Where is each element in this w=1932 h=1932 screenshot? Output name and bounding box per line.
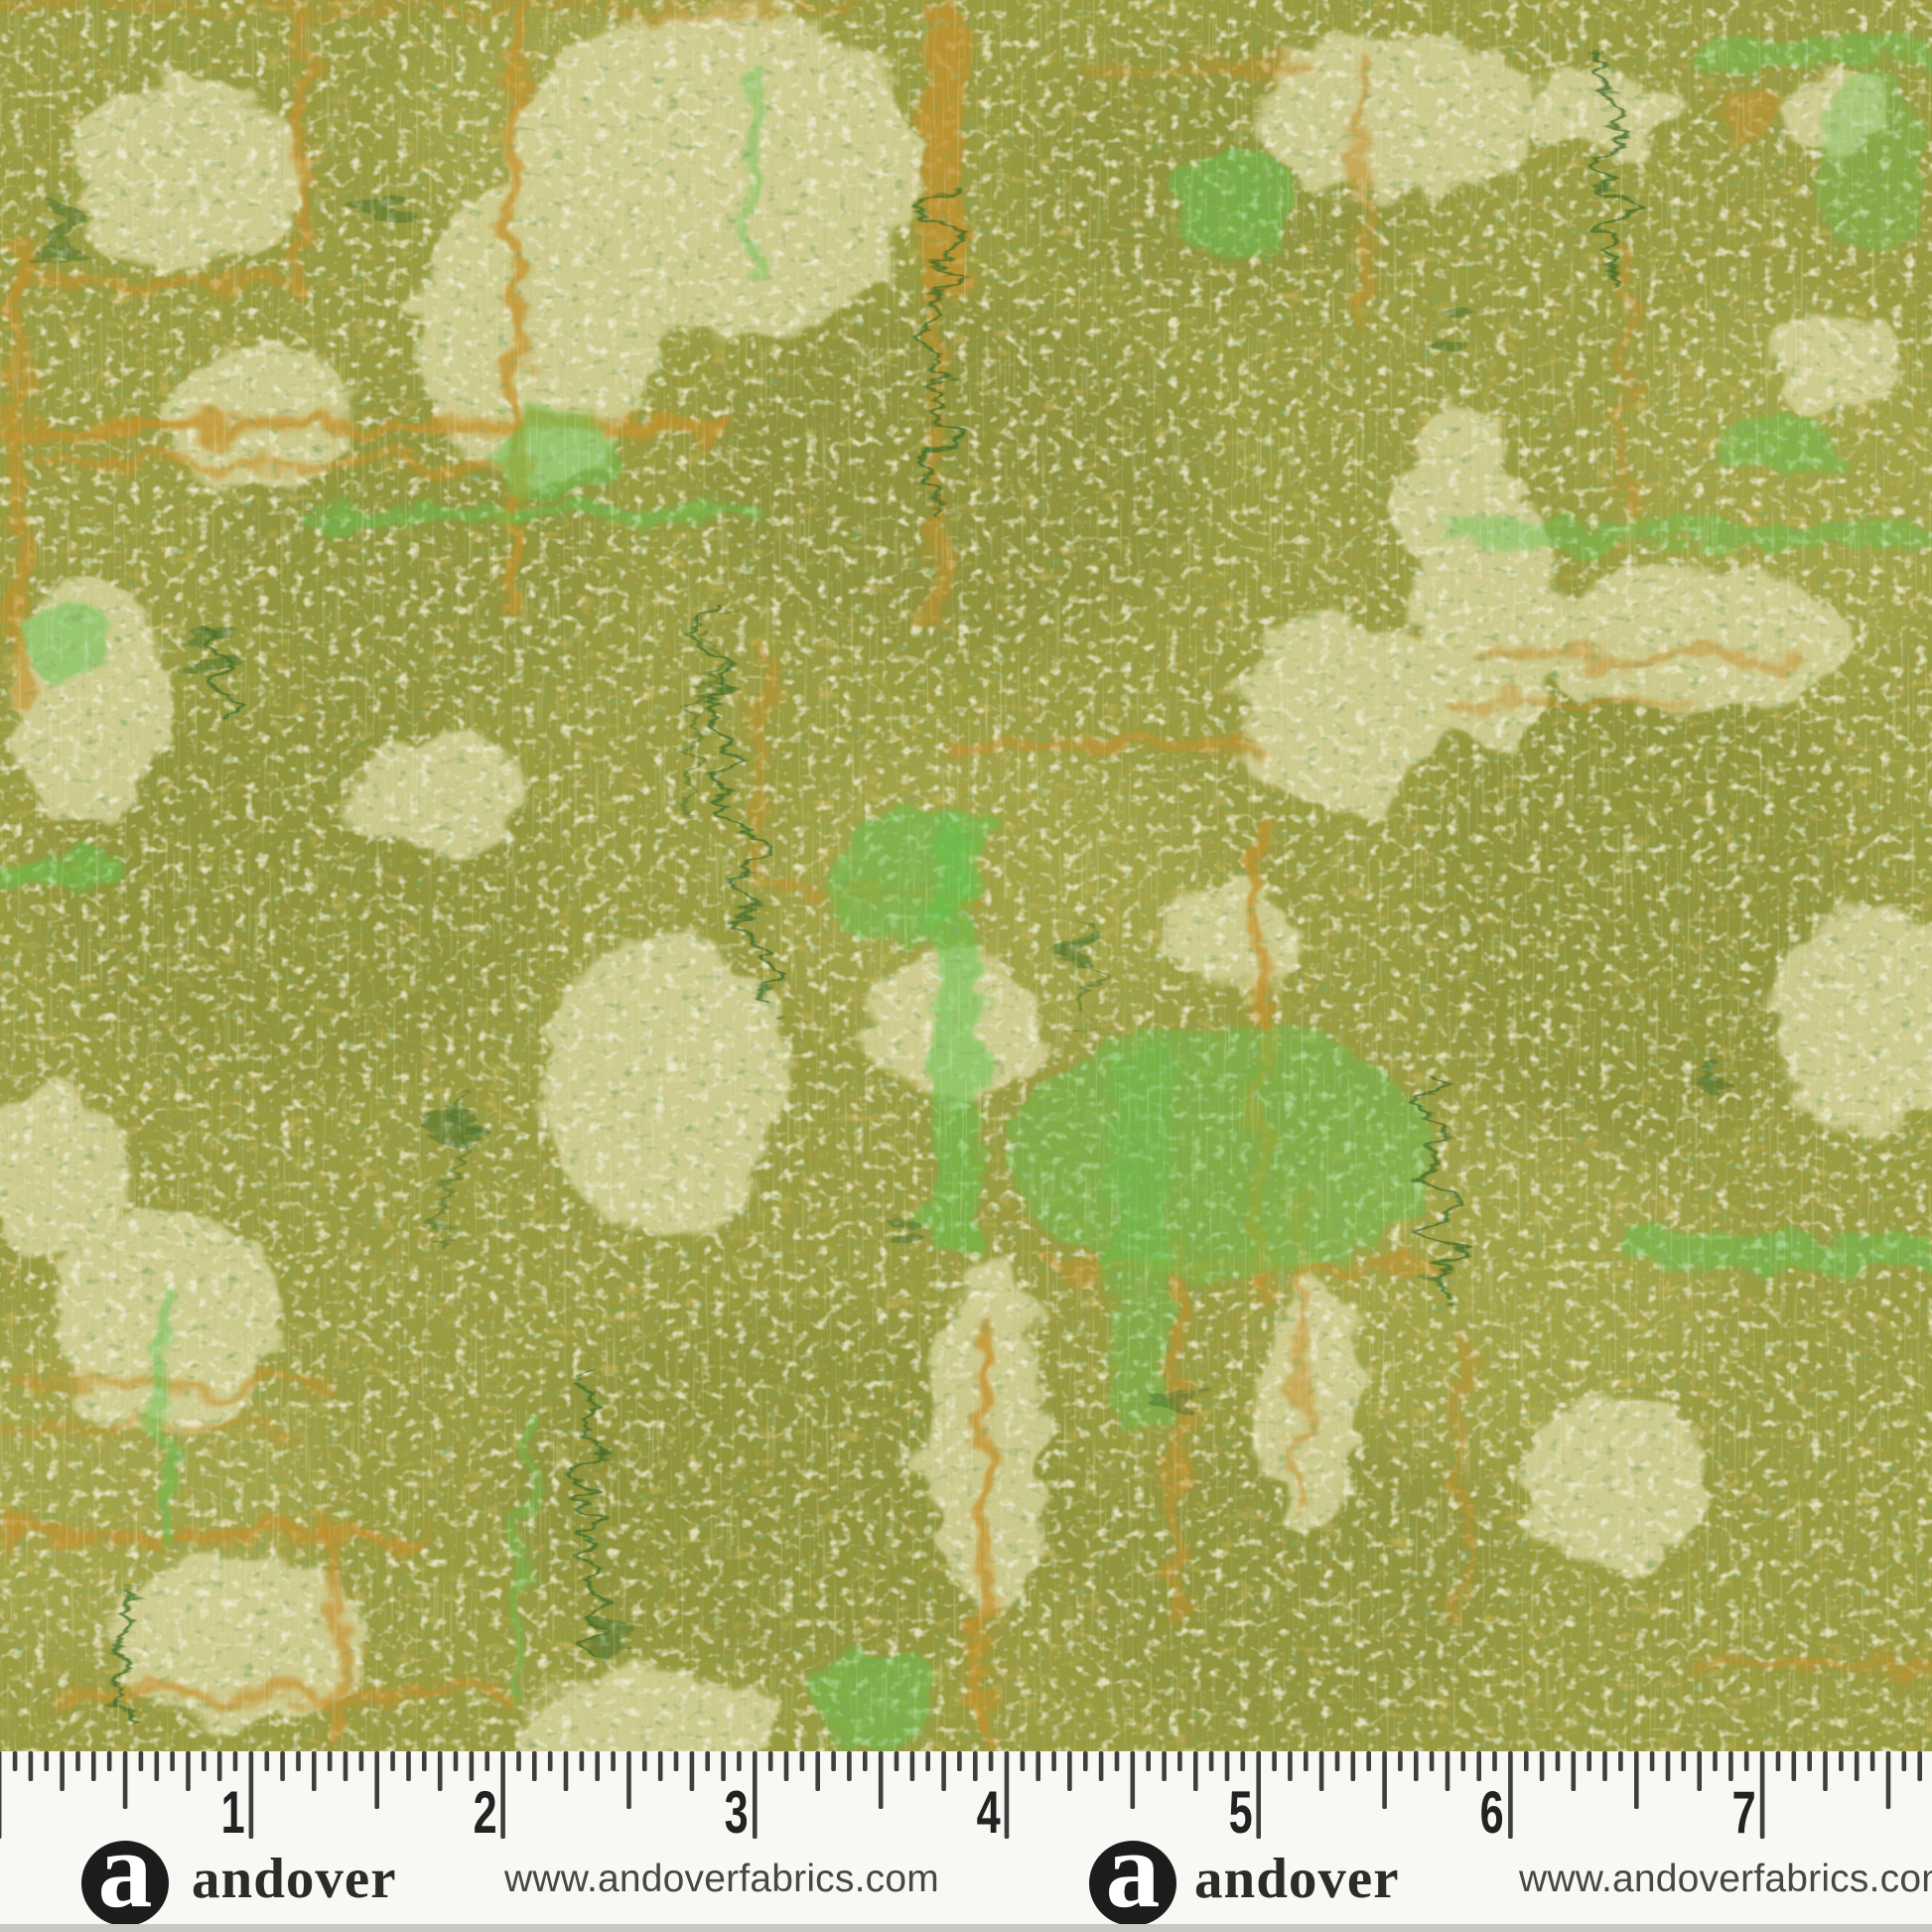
andover-logo-letter: a	[1106, 1841, 1161, 1924]
ruler-number: 3	[688, 1785, 753, 1841]
andover-logo-letter: a	[98, 1841, 153, 1924]
ruler-number: 2	[437, 1785, 501, 1841]
ruler-number: 1	[185, 1785, 249, 1841]
ruler: 1234567 a andover www.andoverfabrics.com…	[0, 1751, 1932, 1932]
fabric-texture	[0, 0, 1932, 1751]
website-url: www.andoverfabrics.com	[1519, 1860, 1932, 1898]
brand-wordmark: andover	[1194, 1851, 1400, 1907]
ruler-number: 5	[1192, 1785, 1257, 1841]
andover-logo-icon: a	[81, 1841, 169, 1926]
andover-logo-icon: a	[1089, 1841, 1176, 1926]
product-photo: 1234567 a andover www.andoverfabrics.com…	[0, 0, 1932, 1932]
fabric-grain	[0, 0, 1932, 1751]
website-url: www.andoverfabrics.com	[504, 1860, 939, 1898]
brand-wordmark: andover	[192, 1851, 397, 1907]
ruler-number: 7	[1696, 1785, 1760, 1841]
fabric-swatch	[0, 0, 1932, 1751]
ruler-number: 6	[1445, 1785, 1509, 1841]
photo-bottom-edge	[0, 1924, 1932, 1932]
ruler-number: 4	[940, 1785, 1005, 1841]
